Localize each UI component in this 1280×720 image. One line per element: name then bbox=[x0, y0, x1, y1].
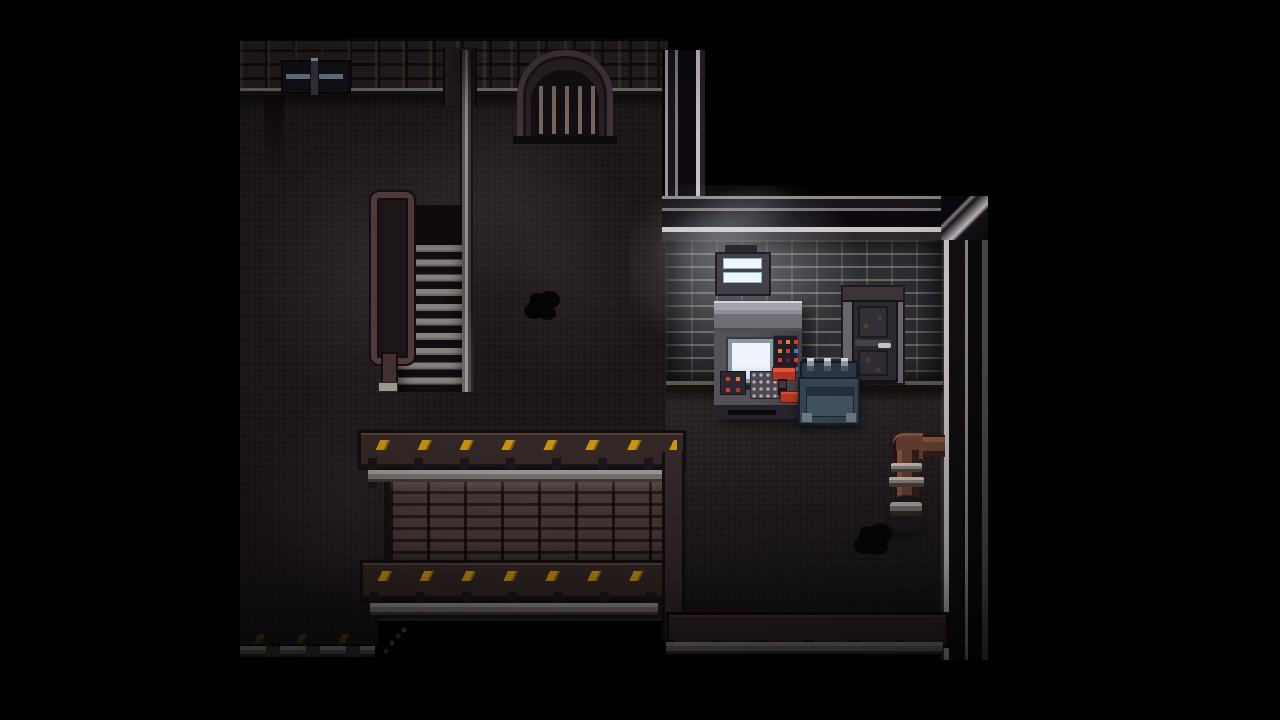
stair-handrail bbox=[371, 192, 414, 364]
handrail-post-base bbox=[378, 382, 398, 392]
door-lower-panel bbox=[858, 350, 888, 376]
arch-gate[interactable] bbox=[517, 50, 613, 142]
door-handle[interactable] bbox=[878, 343, 891, 348]
vent-center-post bbox=[311, 58, 318, 95]
game-screen bbox=[0, 0, 1280, 720]
console-upper-band bbox=[714, 310, 802, 331]
panel-button-dot bbox=[736, 388, 740, 392]
trim-corner bbox=[941, 196, 988, 242]
vent-glass-slat bbox=[286, 74, 310, 79]
letterbox-right bbox=[988, 0, 1280, 720]
crate-clasp bbox=[841, 358, 848, 371]
panel-button-dot bbox=[736, 377, 740, 381]
wall-pillar-shadow bbox=[264, 95, 284, 177]
floor-stain bbox=[858, 528, 886, 552]
panel-button-dot bbox=[794, 340, 798, 344]
pipe-coupling bbox=[889, 477, 924, 487]
light-tube bbox=[723, 272, 762, 283]
hazard-stripe bbox=[367, 440, 677, 450]
console-small-panel[interactable] bbox=[720, 371, 746, 395]
valve-flange-ring[interactable] bbox=[890, 502, 922, 516]
right-room-edge-rail bbox=[666, 640, 943, 654]
console-base-slot bbox=[728, 410, 776, 415]
panel-button-dot bbox=[778, 358, 782, 362]
pipe-coupling bbox=[891, 463, 922, 472]
panel-button-dot bbox=[786, 349, 790, 353]
crate-corner-brace bbox=[802, 413, 812, 422]
crate-clasp bbox=[824, 358, 831, 371]
railing-bar bbox=[368, 470, 664, 482]
rail-ticks bbox=[240, 646, 375, 657]
console-base bbox=[717, 405, 799, 419]
brick-parapet bbox=[384, 482, 670, 564]
trim-left-vertical bbox=[662, 50, 705, 196]
panel-button-dot bbox=[726, 377, 730, 381]
panel-button-dot bbox=[786, 340, 790, 344]
letterbox-left bbox=[0, 0, 240, 720]
arch-bars bbox=[539, 86, 595, 134]
panel-button-dot bbox=[778, 349, 782, 353]
left-floor-edge-rail bbox=[240, 646, 375, 657]
railing-bar bbox=[370, 603, 658, 615]
console-top-cap bbox=[714, 301, 802, 310]
trim-right-vertical bbox=[941, 240, 988, 660]
hazard-stripe bbox=[369, 571, 665, 581]
railing-lower bbox=[370, 592, 658, 620]
pipe-valve-base bbox=[882, 492, 930, 536]
void-bottom bbox=[240, 657, 988, 720]
vent-glass-slat bbox=[319, 74, 343, 79]
panel-button-dot bbox=[726, 388, 730, 392]
wall-vent bbox=[281, 60, 351, 94]
control-console[interactable] bbox=[714, 301, 802, 419]
blue-crate[interactable] bbox=[798, 361, 860, 425]
light-tube bbox=[723, 258, 762, 269]
panel-button-dot bbox=[778, 340, 782, 344]
crate-corner-brace bbox=[846, 413, 856, 422]
rust-drips bbox=[382, 627, 408, 655]
door-upper-panel bbox=[858, 306, 888, 338]
panel-button-dot bbox=[794, 349, 798, 353]
trim-top-horizontal bbox=[662, 196, 942, 242]
crate-body bbox=[798, 377, 860, 425]
railing-bar bbox=[666, 642, 943, 654]
panel-button-dot bbox=[786, 358, 790, 362]
switch-knob bbox=[779, 381, 786, 388]
fluorescent-light bbox=[715, 245, 767, 293]
arch-sill bbox=[513, 136, 617, 144]
dim-hazard-left bbox=[243, 634, 355, 643]
floor-stain bbox=[528, 295, 554, 317]
crate-clasp bbox=[807, 358, 814, 371]
